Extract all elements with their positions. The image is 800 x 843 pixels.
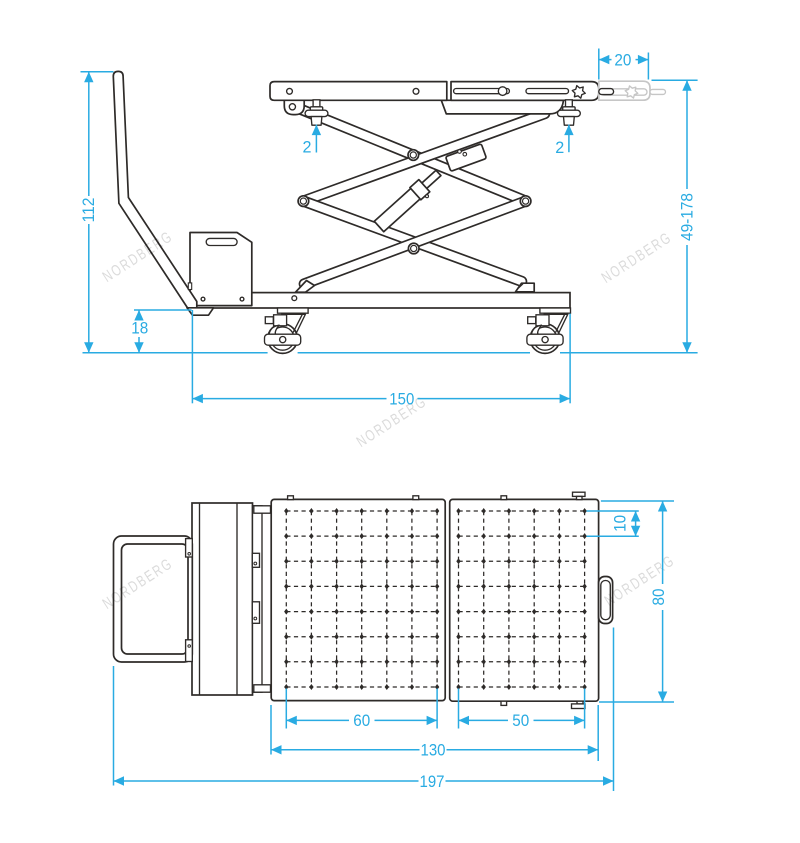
svg-text:130: 130 bbox=[421, 741, 446, 760]
svg-text:197: 197 bbox=[420, 772, 445, 791]
svg-text:150: 150 bbox=[389, 389, 414, 408]
svg-text:18: 18 bbox=[131, 319, 148, 338]
svg-text:49-178: 49-178 bbox=[678, 193, 697, 241]
svg-text:2: 2 bbox=[555, 138, 564, 157]
svg-text:2: 2 bbox=[303, 138, 312, 157]
svg-text:20: 20 bbox=[614, 50, 631, 69]
svg-text:80: 80 bbox=[649, 589, 668, 606]
svg-text:112: 112 bbox=[79, 198, 98, 223]
svg-text:60: 60 bbox=[353, 711, 370, 730]
svg-text:10: 10 bbox=[610, 515, 629, 532]
svg-text:50: 50 bbox=[512, 711, 529, 730]
